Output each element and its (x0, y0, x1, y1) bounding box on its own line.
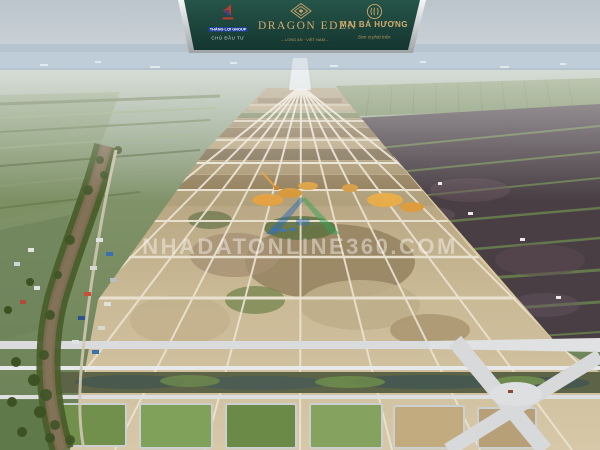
partner-name: MAI BÁ HƯƠNG (332, 21, 416, 29)
developer-role: CHỦ ĐẦU TƯ (205, 36, 250, 41)
monogram-ring-icon (366, 3, 383, 20)
developer-logo-block: THẮNG LỢI GROUP CHỦ ĐẦU TƯ (187, 3, 269, 44)
lotus-diamond-icon (290, 3, 312, 19)
partner-tagline: Đơn vị phát triển (358, 35, 390, 40)
sponsor-banner: THẮNG LỢI GROUP CHỦ ĐẦU TƯ DRAGON EDEN –… (0, 0, 600, 56)
aerial-photo: NHADATONLINE360.COM (0, 0, 600, 450)
partner-logo-block: MAI BÁ HƯƠNG Đơn vị phát triển (332, 3, 416, 46)
developer-name: THẮNG LỢI GROUP (208, 27, 247, 32)
atmospheric-haze (0, 70, 600, 200)
project-tagline: – LONG AN · VIỆT NAM – (281, 38, 328, 42)
sailboat-icon (219, 3, 237, 22)
aerial-scene (0, 0, 600, 450)
